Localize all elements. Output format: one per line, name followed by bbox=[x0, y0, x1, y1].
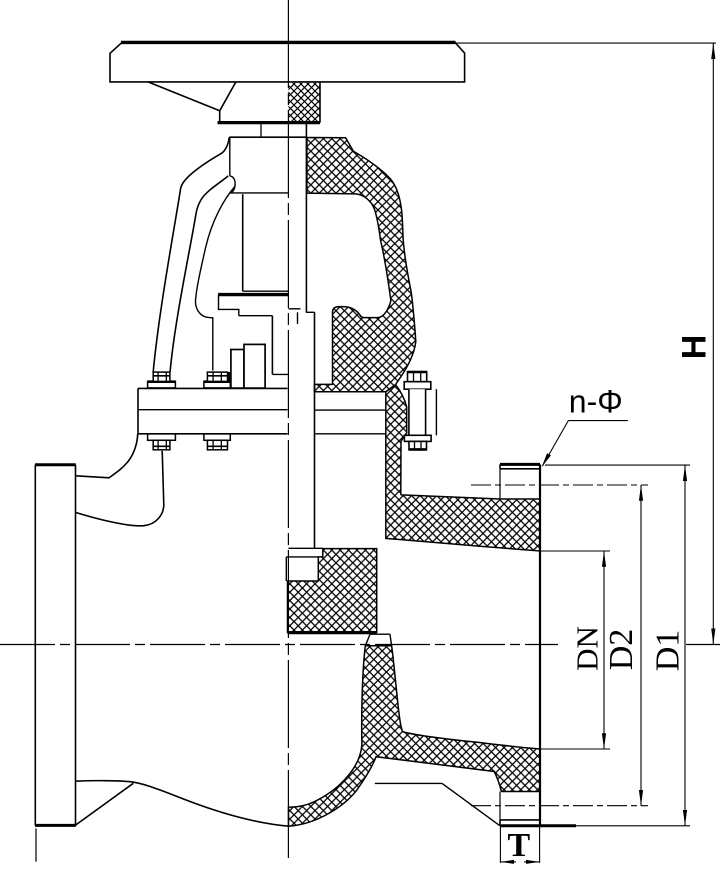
svg-text:D1: D1 bbox=[650, 630, 687, 672]
svg-text:H: H bbox=[676, 335, 714, 360]
svg-text:D2: D2 bbox=[603, 629, 640, 671]
svg-text:n-Φ: n-Φ bbox=[569, 384, 623, 420]
svg-text:T: T bbox=[507, 827, 530, 864]
svg-text:DN: DN bbox=[570, 626, 605, 671]
